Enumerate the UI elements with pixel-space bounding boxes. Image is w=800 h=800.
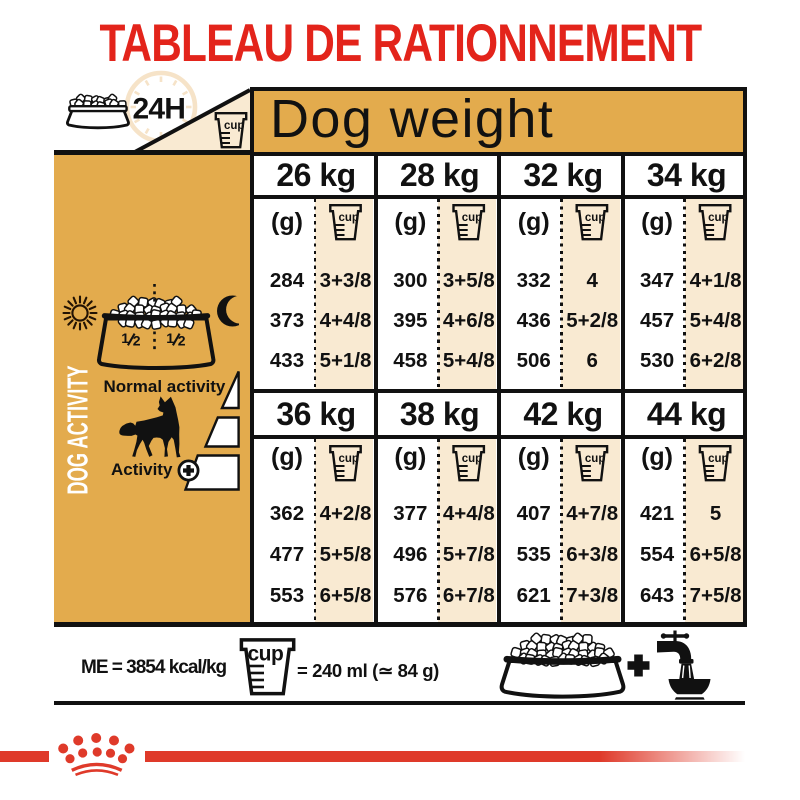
svg-text:2: 2 xyxy=(178,333,186,349)
svg-text:2: 2 xyxy=(133,333,141,349)
